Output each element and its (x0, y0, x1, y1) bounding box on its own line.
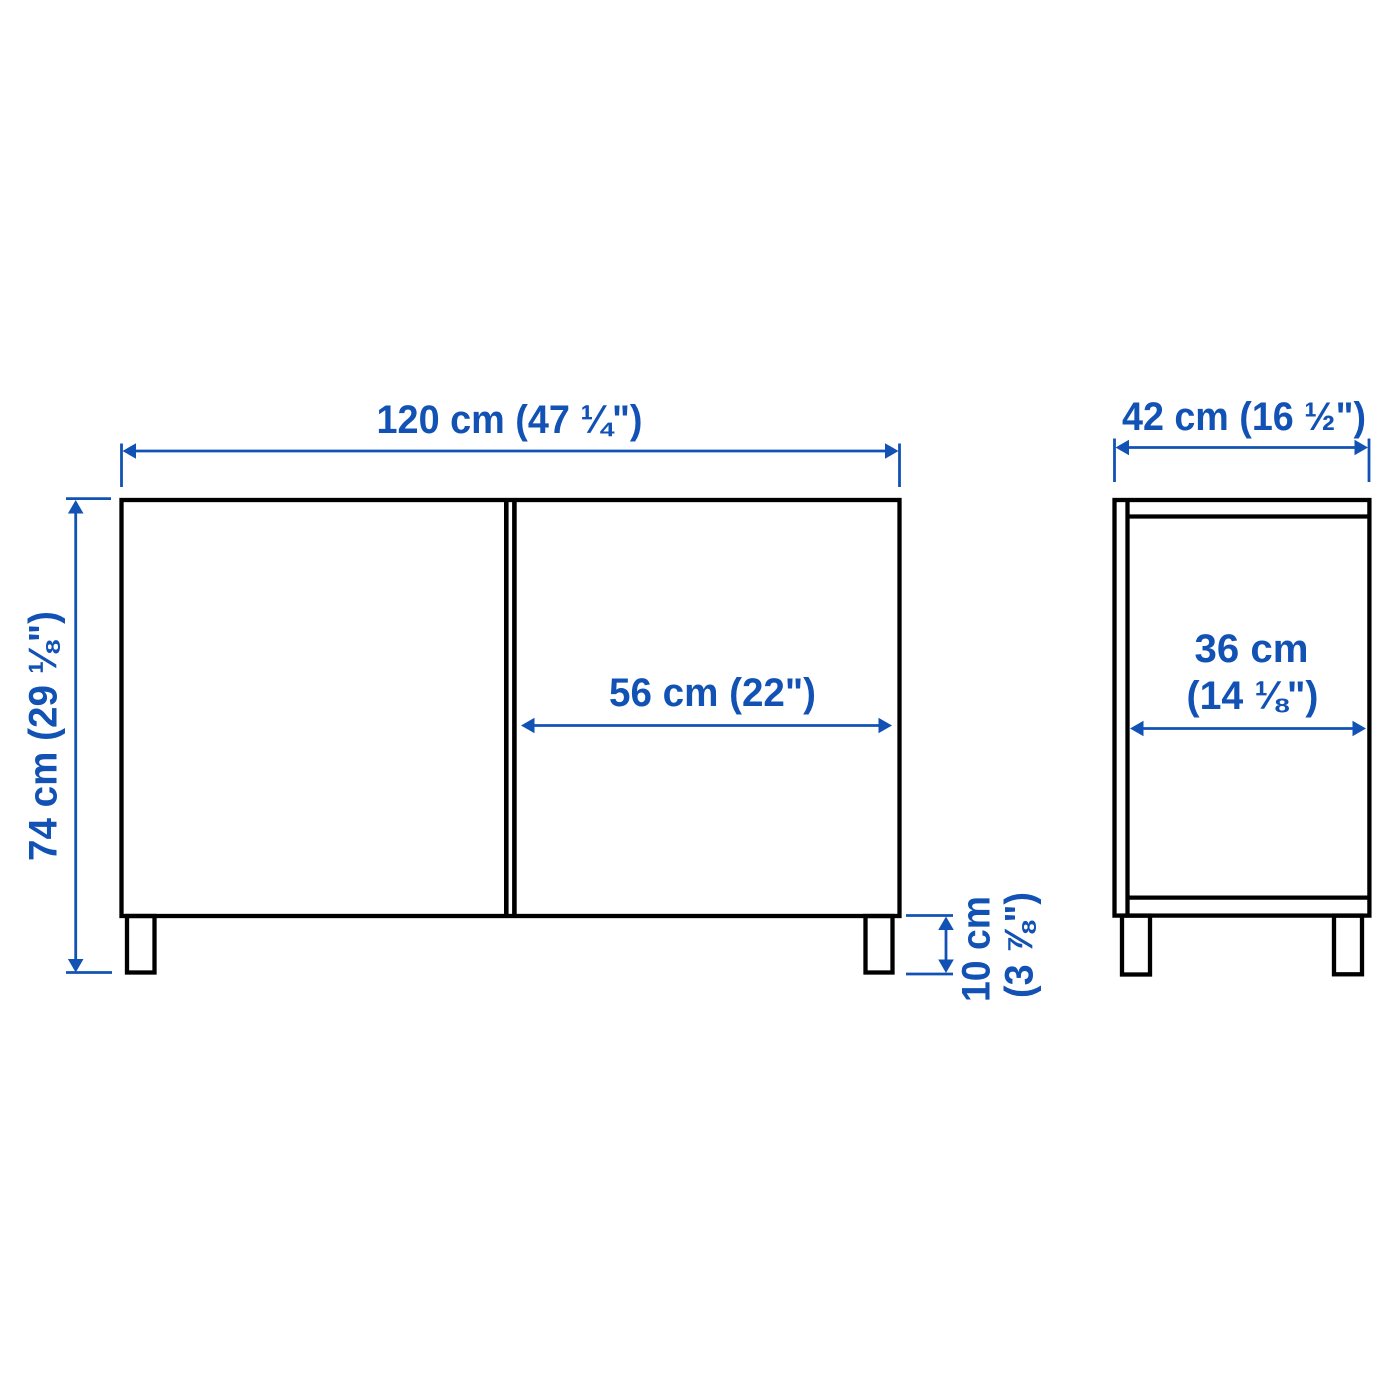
svg-text:120 cm (47 ¼"): 120 cm (47 ¼") (377, 398, 643, 442)
svg-text:42 cm (16 ½"): 42 cm (16 ½") (1122, 395, 1366, 439)
svg-text:56 cm (22"): 56 cm (22") (609, 671, 816, 715)
svg-text:(3 ⅞"): (3 ⅞") (998, 892, 1042, 998)
svg-text:36 cm: 36 cm (1195, 627, 1309, 671)
svg-text:10 cm: 10 cm (955, 896, 999, 1002)
svg-text:74 cm (29 ⅛"): 74 cm (29 ⅛") (22, 611, 66, 861)
svg-text:(14 ⅛"): (14 ⅛") (1187, 674, 1319, 718)
